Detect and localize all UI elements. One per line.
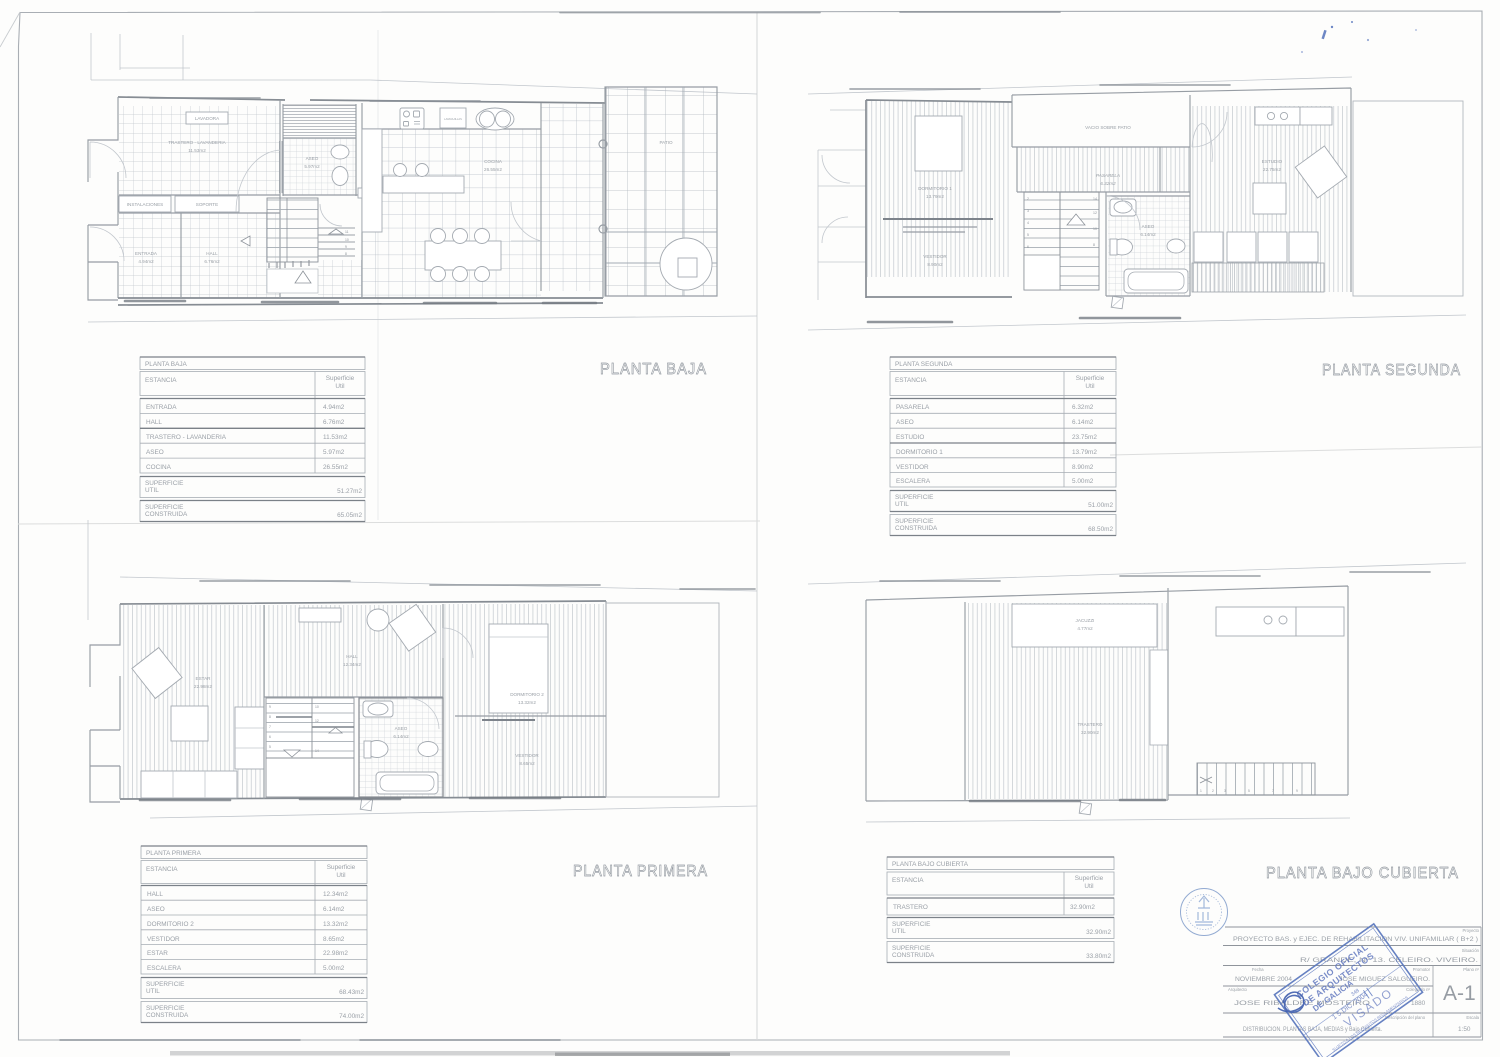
- svg-text:6: 6: [1027, 245, 1029, 249]
- svg-text:VESTIDOR: VESTIDOR: [515, 753, 539, 758]
- svg-text:10: 10: [315, 705, 319, 709]
- svg-text:CONSTRUIDA: CONSTRUIDA: [145, 511, 188, 518]
- svg-text:JACUZZI: JACUZZI: [1076, 618, 1095, 623]
- svg-text:DORMITORIO 1: DORMITORIO 1: [896, 449, 943, 456]
- svg-text:Descripción del plano: Descripción del plano: [1385, 1015, 1426, 1020]
- svg-text:ASEO: ASEO: [395, 726, 408, 731]
- svg-text:TRASTERO: TRASTERO: [893, 904, 928, 911]
- svg-text:VESTIDOR: VESTIDOR: [923, 254, 947, 259]
- svg-text:SUPERFICIE: SUPERFICIE: [895, 494, 933, 501]
- svg-text:UTIL: UTIL: [895, 501, 909, 508]
- svg-text:PLANTA PRIMERA: PLANTA PRIMERA: [146, 850, 202, 857]
- svg-text:5.97m2: 5.97m2: [323, 449, 345, 456]
- svg-text:2: 2: [1027, 197, 1029, 201]
- svg-text:Escala: Escala: [1466, 1015, 1479, 1020]
- svg-text:12.34m2: 12.34m2: [323, 891, 348, 898]
- svg-text:PLANTA SEGUNDA: PLANTA SEGUNDA: [1322, 362, 1461, 379]
- svg-text:11.53m2: 11.53m2: [323, 434, 348, 441]
- svg-text:14: 14: [315, 749, 319, 753]
- svg-text:8: 8: [1093, 243, 1095, 247]
- svg-text:HALL: HALL: [346, 654, 358, 659]
- svg-text:32.90m2: 32.90m2: [1086, 929, 1111, 936]
- svg-text:INSTALACIONES: INSTALACIONES: [127, 202, 163, 207]
- svg-text:VESTIDOR: VESTIDOR: [896, 464, 929, 471]
- svg-text:ASEO: ASEO: [146, 449, 164, 456]
- svg-text:32.90m2: 32.90m2: [1081, 730, 1099, 735]
- svg-text:8.90m2: 8.90m2: [1072, 464, 1094, 471]
- svg-text:32.90m2: 32.90m2: [1070, 904, 1095, 911]
- svg-text:Superficie: Superficie: [327, 864, 356, 871]
- svg-text:ENTRADA: ENTRADA: [135, 251, 158, 256]
- svg-text:Util: Util: [1084, 883, 1093, 890]
- svg-text:NOVIEMBRE 2004: NOVIEMBRE 2004: [1235, 976, 1292, 983]
- svg-text:ESCALERA: ESCALERA: [896, 478, 931, 485]
- svg-text:13.79m2: 13.79m2: [1072, 449, 1097, 456]
- svg-text:PASARELA: PASARELA: [896, 404, 930, 411]
- svg-text:13.79m2: 13.79m2: [926, 194, 944, 199]
- svg-text:PLANTA BAJO CUBIERTA: PLANTA BAJO CUBIERTA: [1266, 865, 1459, 882]
- svg-text:Superficie: Superficie: [1075, 875, 1104, 882]
- svg-text:TRASTERO - LAVANDERIA: TRASTERO - LAVANDERIA: [146, 434, 227, 441]
- svg-text:VESTIDOR: VESTIDOR: [147, 936, 180, 943]
- svg-text:10: 10: [1093, 227, 1097, 231]
- svg-text:8.90m2: 8.90m2: [927, 262, 943, 267]
- svg-text:HALL: HALL: [146, 419, 162, 426]
- svg-text:6.14m2: 6.14m2: [393, 734, 409, 739]
- svg-text:TRASTERO: TRASTERO: [1077, 722, 1102, 727]
- svg-text:PLANTA SEGUNDA: PLANTA SEGUNDA: [895, 361, 953, 368]
- svg-text:ENTRADA: ENTRADA: [146, 404, 177, 411]
- svg-text:7: 7: [269, 725, 271, 729]
- svg-text:13.32m2: 13.32m2: [323, 921, 348, 928]
- svg-text:ESTANCIA: ESTANCIA: [895, 377, 927, 384]
- svg-text:12: 12: [1093, 211, 1097, 215]
- svg-text:Superficie: Superficie: [1076, 375, 1105, 382]
- svg-text:Util: Util: [1085, 383, 1094, 390]
- svg-text:74.00m2: 74.00m2: [339, 1013, 364, 1020]
- svg-text:Arquitecto: Arquitecto: [1228, 987, 1248, 992]
- svg-text:3: 3: [1224, 789, 1226, 793]
- svg-text:SUPERFICIE: SUPERFICIE: [895, 518, 933, 525]
- svg-text:68.43m2: 68.43m2: [339, 989, 364, 996]
- svg-text:5.97m2: 5.97m2: [304, 164, 320, 169]
- svg-text:4.94m2: 4.94m2: [323, 404, 345, 411]
- svg-text:51.27m2: 51.27m2: [337, 488, 362, 495]
- svg-text:ESTANCIA: ESTANCIA: [145, 377, 177, 384]
- svg-text:1: 1: [1200, 789, 1202, 793]
- svg-text:PLANTA BAJO CUBIERTA: PLANTA BAJO CUBIERTA: [892, 861, 969, 868]
- svg-text:1880: 1880: [1411, 1000, 1426, 1007]
- svg-text:ESTAR: ESTAR: [196, 676, 212, 681]
- svg-text:ASEO: ASEO: [1142, 224, 1155, 229]
- svg-text:UTIL: UTIL: [146, 988, 160, 995]
- svg-text:HALL: HALL: [147, 891, 163, 898]
- svg-text:3: 3: [1027, 209, 1029, 213]
- svg-text:6: 6: [269, 735, 271, 739]
- svg-text:4: 4: [1027, 221, 1029, 225]
- svg-text:VACIO SOBRE PATIO: VACIO SOBRE PATIO: [1085, 125, 1131, 130]
- svg-text:PASARELA: PASARELA: [1096, 173, 1120, 178]
- svg-text:LAVADORA: LAVADORA: [195, 116, 220, 121]
- svg-text:5.00m2: 5.00m2: [1072, 478, 1094, 485]
- svg-text:6.14m2: 6.14m2: [1140, 232, 1156, 237]
- svg-text:ESTUDIO: ESTUDIO: [1262, 159, 1283, 164]
- svg-text:22.98m2: 22.98m2: [323, 950, 348, 957]
- svg-text:ASEO: ASEO: [306, 156, 319, 161]
- svg-text:CONSTRUIDA: CONSTRUIDA: [146, 1012, 189, 1019]
- svg-text:PLANTA BAJA: PLANTA BAJA: [145, 361, 188, 368]
- svg-text:ASEO: ASEO: [147, 906, 165, 913]
- svg-text:Situación: Situación: [1462, 948, 1480, 953]
- svg-text:9: 9: [1296, 789, 1298, 793]
- svg-text:22.98m2: 22.98m2: [194, 684, 212, 689]
- svg-text:DORMITORIO 2: DORMITORIO 2: [147, 921, 194, 928]
- svg-text:8: 8: [345, 252, 347, 256]
- svg-text:6.76m2: 6.76m2: [323, 419, 345, 426]
- svg-text:14: 14: [1093, 197, 1097, 201]
- svg-text:PLANTA BAJA: PLANTA BAJA: [600, 361, 707, 378]
- svg-text:DORMITORIO 1: DORMITORIO 1: [918, 186, 952, 191]
- svg-text:6.32m2: 6.32m2: [1072, 404, 1094, 411]
- svg-text:9: 9: [269, 705, 271, 709]
- svg-text:Plano nº: Plano nº: [1463, 967, 1479, 972]
- svg-text:SUPERFICIE: SUPERFICIE: [145, 504, 183, 511]
- svg-text:22.75m2: 22.75m2: [1263, 167, 1281, 172]
- svg-text:6.76m2: 6.76m2: [204, 259, 220, 264]
- svg-text:TRASTERO - LAVANDERIA: TRASTERO - LAVANDERIA: [168, 140, 226, 145]
- svg-text:5: 5: [1027, 233, 1029, 237]
- svg-text:ESTUDIO: ESTUDIO: [896, 434, 924, 441]
- svg-text:1:50: 1:50: [1458, 1026, 1471, 1033]
- svg-text:COCINA: COCINA: [146, 464, 172, 471]
- svg-text:SUPERFICIE: SUPERFICIE: [146, 981, 184, 988]
- svg-text:CONSTRUIDA: CONSTRUIDA: [892, 952, 935, 959]
- svg-text:UTIL: UTIL: [892, 928, 906, 935]
- svg-text:5.00m2: 5.00m2: [323, 965, 345, 972]
- svg-text:23.75m2: 23.75m2: [1072, 434, 1097, 441]
- svg-text:11: 11: [345, 230, 349, 234]
- svg-text:6.32m2: 6.32m2: [1100, 181, 1116, 186]
- svg-text:ASEO: ASEO: [896, 419, 914, 426]
- svg-text:12.34m2: 12.34m2: [343, 662, 361, 667]
- svg-text:Proyecto: Proyecto: [1462, 928, 1479, 933]
- svg-text:CONSTRUIDA: CONSTRUIDA: [895, 525, 938, 532]
- svg-text:7: 7: [1272, 789, 1274, 793]
- svg-text:JOSE MIGUEZ SALGUEIRO.: JOSE MIGUEZ SALGUEIRO.: [1339, 976, 1430, 983]
- svg-text:Util: Util: [335, 383, 344, 390]
- svg-text:51.00m2: 51.00m2: [1088, 502, 1113, 509]
- svg-text:4.94m2: 4.94m2: [138, 259, 154, 264]
- svg-text:SOPORTE: SOPORTE: [196, 202, 218, 207]
- svg-text:SUPERFICIE: SUPERFICIE: [892, 921, 930, 928]
- svg-text:6.14m2: 6.14m2: [1072, 419, 1094, 426]
- svg-text:68.50m2: 68.50m2: [1088, 526, 1113, 533]
- svg-text:12: 12: [315, 719, 319, 723]
- svg-text:8.65m2: 8.65m2: [323, 936, 345, 943]
- svg-text:SUPERFICIE: SUPERFICIE: [146, 1005, 184, 1012]
- svg-text:ESTANCIA: ESTANCIA: [146, 866, 178, 873]
- svg-text:4.77m2: 4.77m2: [1077, 626, 1093, 631]
- svg-text:11.53m2: 11.53m2: [188, 148, 206, 153]
- svg-text:8.65m2: 8.65m2: [519, 761, 535, 766]
- svg-text:5: 5: [269, 745, 271, 749]
- svg-text:COCINA: COCINA: [484, 159, 503, 164]
- svg-text:ESTAR: ESTAR: [147, 950, 168, 957]
- svg-text:33.80m2: 33.80m2: [1086, 953, 1111, 960]
- svg-text:10: 10: [345, 238, 349, 242]
- svg-text:HALL: HALL: [206, 251, 218, 256]
- svg-text:SUPERFICIE: SUPERFICIE: [892, 945, 930, 952]
- svg-text:5: 5: [1248, 789, 1250, 793]
- svg-text:ESCALERA: ESCALERA: [147, 965, 182, 972]
- svg-text:Fecha: Fecha: [1252, 967, 1264, 972]
- svg-text:PLANTA PRIMERA: PLANTA PRIMERA: [573, 863, 708, 880]
- svg-text:Superficie: Superficie: [326, 375, 355, 382]
- svg-text:26.55m2: 26.55m2: [323, 464, 348, 471]
- svg-text:2: 2: [1212, 789, 1214, 793]
- svg-text:DORMITORIO 2: DORMITORIO 2: [510, 692, 544, 697]
- svg-text:ESTANCIA: ESTANCIA: [892, 877, 924, 884]
- svg-text:Promotor: Promotor: [1413, 967, 1431, 972]
- svg-text:26.55m2: 26.55m2: [484, 167, 502, 172]
- svg-text:9: 9: [345, 245, 347, 249]
- svg-text:LAVAVAJILLAS: LAVAVAJILLAS: [444, 117, 462, 121]
- svg-text:6.14m2: 6.14m2: [323, 906, 345, 913]
- svg-text:SUPERFICIE: SUPERFICIE: [145, 480, 183, 487]
- svg-text:PATIO: PATIO: [659, 140, 673, 145]
- svg-text:Util: Util: [336, 872, 345, 879]
- svg-text:A-1: A-1: [1443, 982, 1476, 1005]
- svg-text:UTIL: UTIL: [145, 487, 159, 494]
- svg-text:8: 8: [269, 715, 271, 719]
- svg-text:13.32m2: 13.32m2: [518, 700, 536, 705]
- svg-text:65.05m2: 65.05m2: [337, 512, 362, 519]
